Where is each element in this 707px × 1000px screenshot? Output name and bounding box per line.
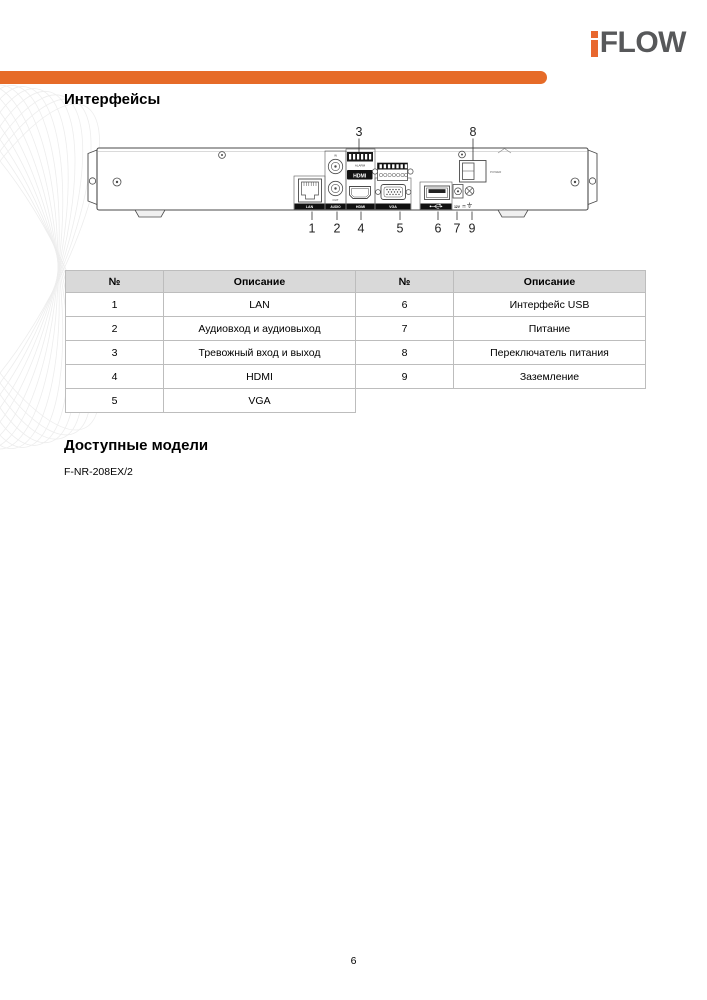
- audio-in-label: IN: [334, 154, 337, 158]
- power-label: 12V: [454, 205, 461, 209]
- callout-5: 5: [397, 222, 404, 236]
- cell-desc: Питание: [454, 317, 646, 341]
- page-number: 6: [0, 955, 707, 967]
- interfaces-table-left: № Описание 1 LAN 2 Аудиовход и аудиовыхо…: [65, 270, 356, 413]
- cell-desc: Переключатель питания: [454, 341, 646, 365]
- hdmi-logo-badge: HDMI: [347, 170, 373, 180]
- table-row: 5 VGA: [66, 389, 356, 413]
- model-name: F-NR-208EX/2: [64, 466, 133, 478]
- power-switch-label: POWER: [490, 170, 502, 174]
- cell-num: 5: [66, 389, 164, 413]
- interfaces-heading: Интерфейсы: [64, 91, 160, 108]
- cell-desc: Тревожный вход и выход: [164, 341, 356, 365]
- table-row: 1 LAN: [66, 293, 356, 317]
- table-row: 4 HDMI: [66, 365, 356, 389]
- table-header-row: № Описание: [66, 271, 356, 293]
- hdmi-logo-text: HDMI: [353, 173, 367, 179]
- hdmi-label: HDMI: [356, 205, 365, 209]
- orange-rule: [0, 71, 547, 84]
- callout-6: 6: [435, 222, 442, 236]
- cell-desc: Заземление: [454, 365, 646, 389]
- col-header-desc: Описание: [164, 271, 356, 293]
- table-row: 6 Интерфейс USB: [356, 293, 646, 317]
- right-foot: [498, 210, 528, 217]
- cell-num: 2: [66, 317, 164, 341]
- col-header-desc: Описание: [454, 271, 646, 293]
- alarm-terminal-block: [372, 163, 413, 181]
- chassis: [97, 148, 588, 210]
- cell-num: 8: [356, 341, 454, 365]
- cell-desc: Интерфейс USB: [454, 293, 646, 317]
- table-row: 8 Переключатель питания: [356, 341, 646, 365]
- callout-1: 1: [309, 222, 316, 236]
- table-row: 2 Аудиовход и аудиовыход: [66, 317, 356, 341]
- callout-9: 9: [469, 222, 476, 236]
- callout-4: 4: [358, 222, 365, 236]
- iflow-logo: FLOW: [591, 29, 686, 57]
- col-header-num: №: [356, 271, 454, 293]
- cell-desc: HDMI: [164, 365, 356, 389]
- callout-2: 2: [334, 222, 341, 236]
- left-ear: [88, 150, 97, 205]
- cell-desc: VGA: [164, 389, 356, 413]
- col-header-num: №: [66, 271, 164, 293]
- logo-text: FLOW: [600, 29, 686, 57]
- left-foot: [135, 210, 165, 217]
- table-row: 3 Тревожный вход и выход: [66, 341, 356, 365]
- audio-label: AUDIO: [330, 205, 341, 209]
- interfaces-table-right: № Описание 6 Интерфейс USB 7 Питание 8 П…: [355, 270, 646, 389]
- callout-3: 3: [356, 125, 363, 139]
- cell-num: 1: [66, 293, 164, 317]
- cell-num: 3: [66, 341, 164, 365]
- rear-panel-diagram: IN OUT ALARM HDMI: [85, 120, 605, 240]
- cell-desc: LAN: [164, 293, 356, 317]
- table-header-row: № Описание: [356, 271, 646, 293]
- table-row: 9 Заземление: [356, 365, 646, 389]
- cell-num: 6: [356, 293, 454, 317]
- callout-8: 8: [470, 125, 477, 139]
- table-row: 7 Питание: [356, 317, 646, 341]
- interfaces-table: № Описание 1 LAN 2 Аудиовход и аудиовыхо…: [65, 270, 646, 413]
- cell-num: 7: [356, 317, 454, 341]
- logo-i-icon: [591, 29, 598, 57]
- audio-out-label: OUT: [333, 198, 339, 202]
- lan-label: LAN: [306, 205, 314, 209]
- cell-num: 4: [66, 365, 164, 389]
- datasheet-page: { "page": { "number": "6" }, "logo": { "…: [0, 0, 707, 1000]
- models-heading: Доступные модели: [64, 437, 208, 454]
- alarm-label: ALARM: [355, 164, 366, 168]
- cell-desc: Аудиовход и аудиовыход: [164, 317, 356, 341]
- callout-7: 7: [454, 222, 461, 236]
- right-ear: [588, 150, 597, 205]
- cell-num: 9: [356, 365, 454, 389]
- vga-label: VGA: [389, 205, 397, 209]
- port-label-strips: LAN AUDIO HDMI VGA 12V: [295, 203, 472, 210]
